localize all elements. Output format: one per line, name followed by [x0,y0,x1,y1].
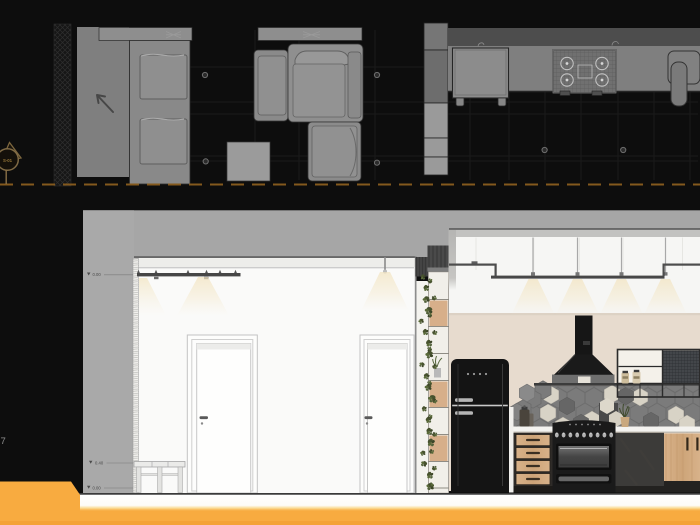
svg-text:0.40: 0.40 [95,460,104,465]
svg-text:0.00: 0.00 [93,272,102,277]
svg-text:S-01: S-01 [3,158,13,163]
svg-text:0.00: 0.00 [93,485,102,490]
svg-text:7: 7 [1,436,6,447]
